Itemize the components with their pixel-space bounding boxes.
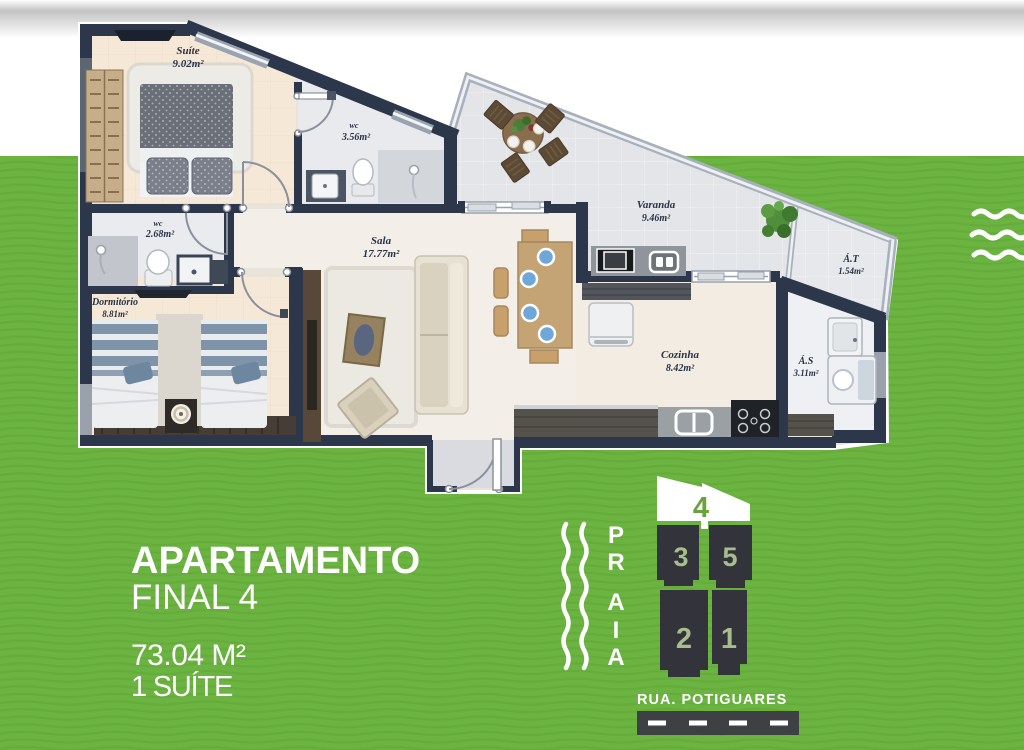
svg-text:RUA. POTIGUARES: RUA. POTIGUARES xyxy=(637,692,787,708)
svg-text:Cozinha: Cozinha xyxy=(661,349,699,361)
svg-text:Á.T: Á.T xyxy=(842,253,859,265)
svg-text:9.46m²: 9.46m² xyxy=(642,213,671,224)
svg-text:17.77m²: 17.77m² xyxy=(363,248,400,260)
svg-text:2: 2 xyxy=(676,623,692,655)
svg-text:Dormitório: Dormitório xyxy=(91,297,138,308)
svg-text:1: 1 xyxy=(721,623,737,655)
svg-text:73.04 M²: 73.04 M² xyxy=(131,639,246,672)
svg-text:Sala: Sala xyxy=(371,235,392,247)
svg-text:5: 5 xyxy=(722,542,737,572)
svg-text:3.11m²: 3.11m² xyxy=(793,368,819,378)
svg-text:Á.S: Á.S xyxy=(798,355,814,367)
svg-text:P: P xyxy=(608,522,624,549)
svg-text:APARTAMENTO: APARTAMENTO xyxy=(131,540,420,582)
svg-text:A: A xyxy=(607,644,624,671)
svg-text:2.68m²: 2.68m² xyxy=(145,229,175,240)
svg-text:3.56m²: 3.56m² xyxy=(341,132,371,143)
svg-text:R: R xyxy=(607,549,624,576)
svg-text:wc: wc xyxy=(154,219,163,228)
svg-text:FINAL 4: FINAL 4 xyxy=(131,578,258,617)
svg-text:8.81m²: 8.81m² xyxy=(102,309,128,319)
svg-text:3: 3 xyxy=(673,542,688,572)
svg-text:1 SUÍTE: 1 SUÍTE xyxy=(131,670,233,703)
svg-text:A: A xyxy=(607,589,624,616)
svg-text:8.42m²: 8.42m² xyxy=(666,363,695,374)
svg-text:Suíte: Suíte xyxy=(176,45,199,57)
svg-text:wc: wc xyxy=(350,121,359,130)
svg-text:1.54m²: 1.54m² xyxy=(838,266,864,276)
svg-text:9.02m²: 9.02m² xyxy=(172,58,204,70)
svg-text:Varanda: Varanda xyxy=(637,199,676,211)
svg-text:I: I xyxy=(613,617,620,644)
svg-text:4: 4 xyxy=(693,492,709,524)
